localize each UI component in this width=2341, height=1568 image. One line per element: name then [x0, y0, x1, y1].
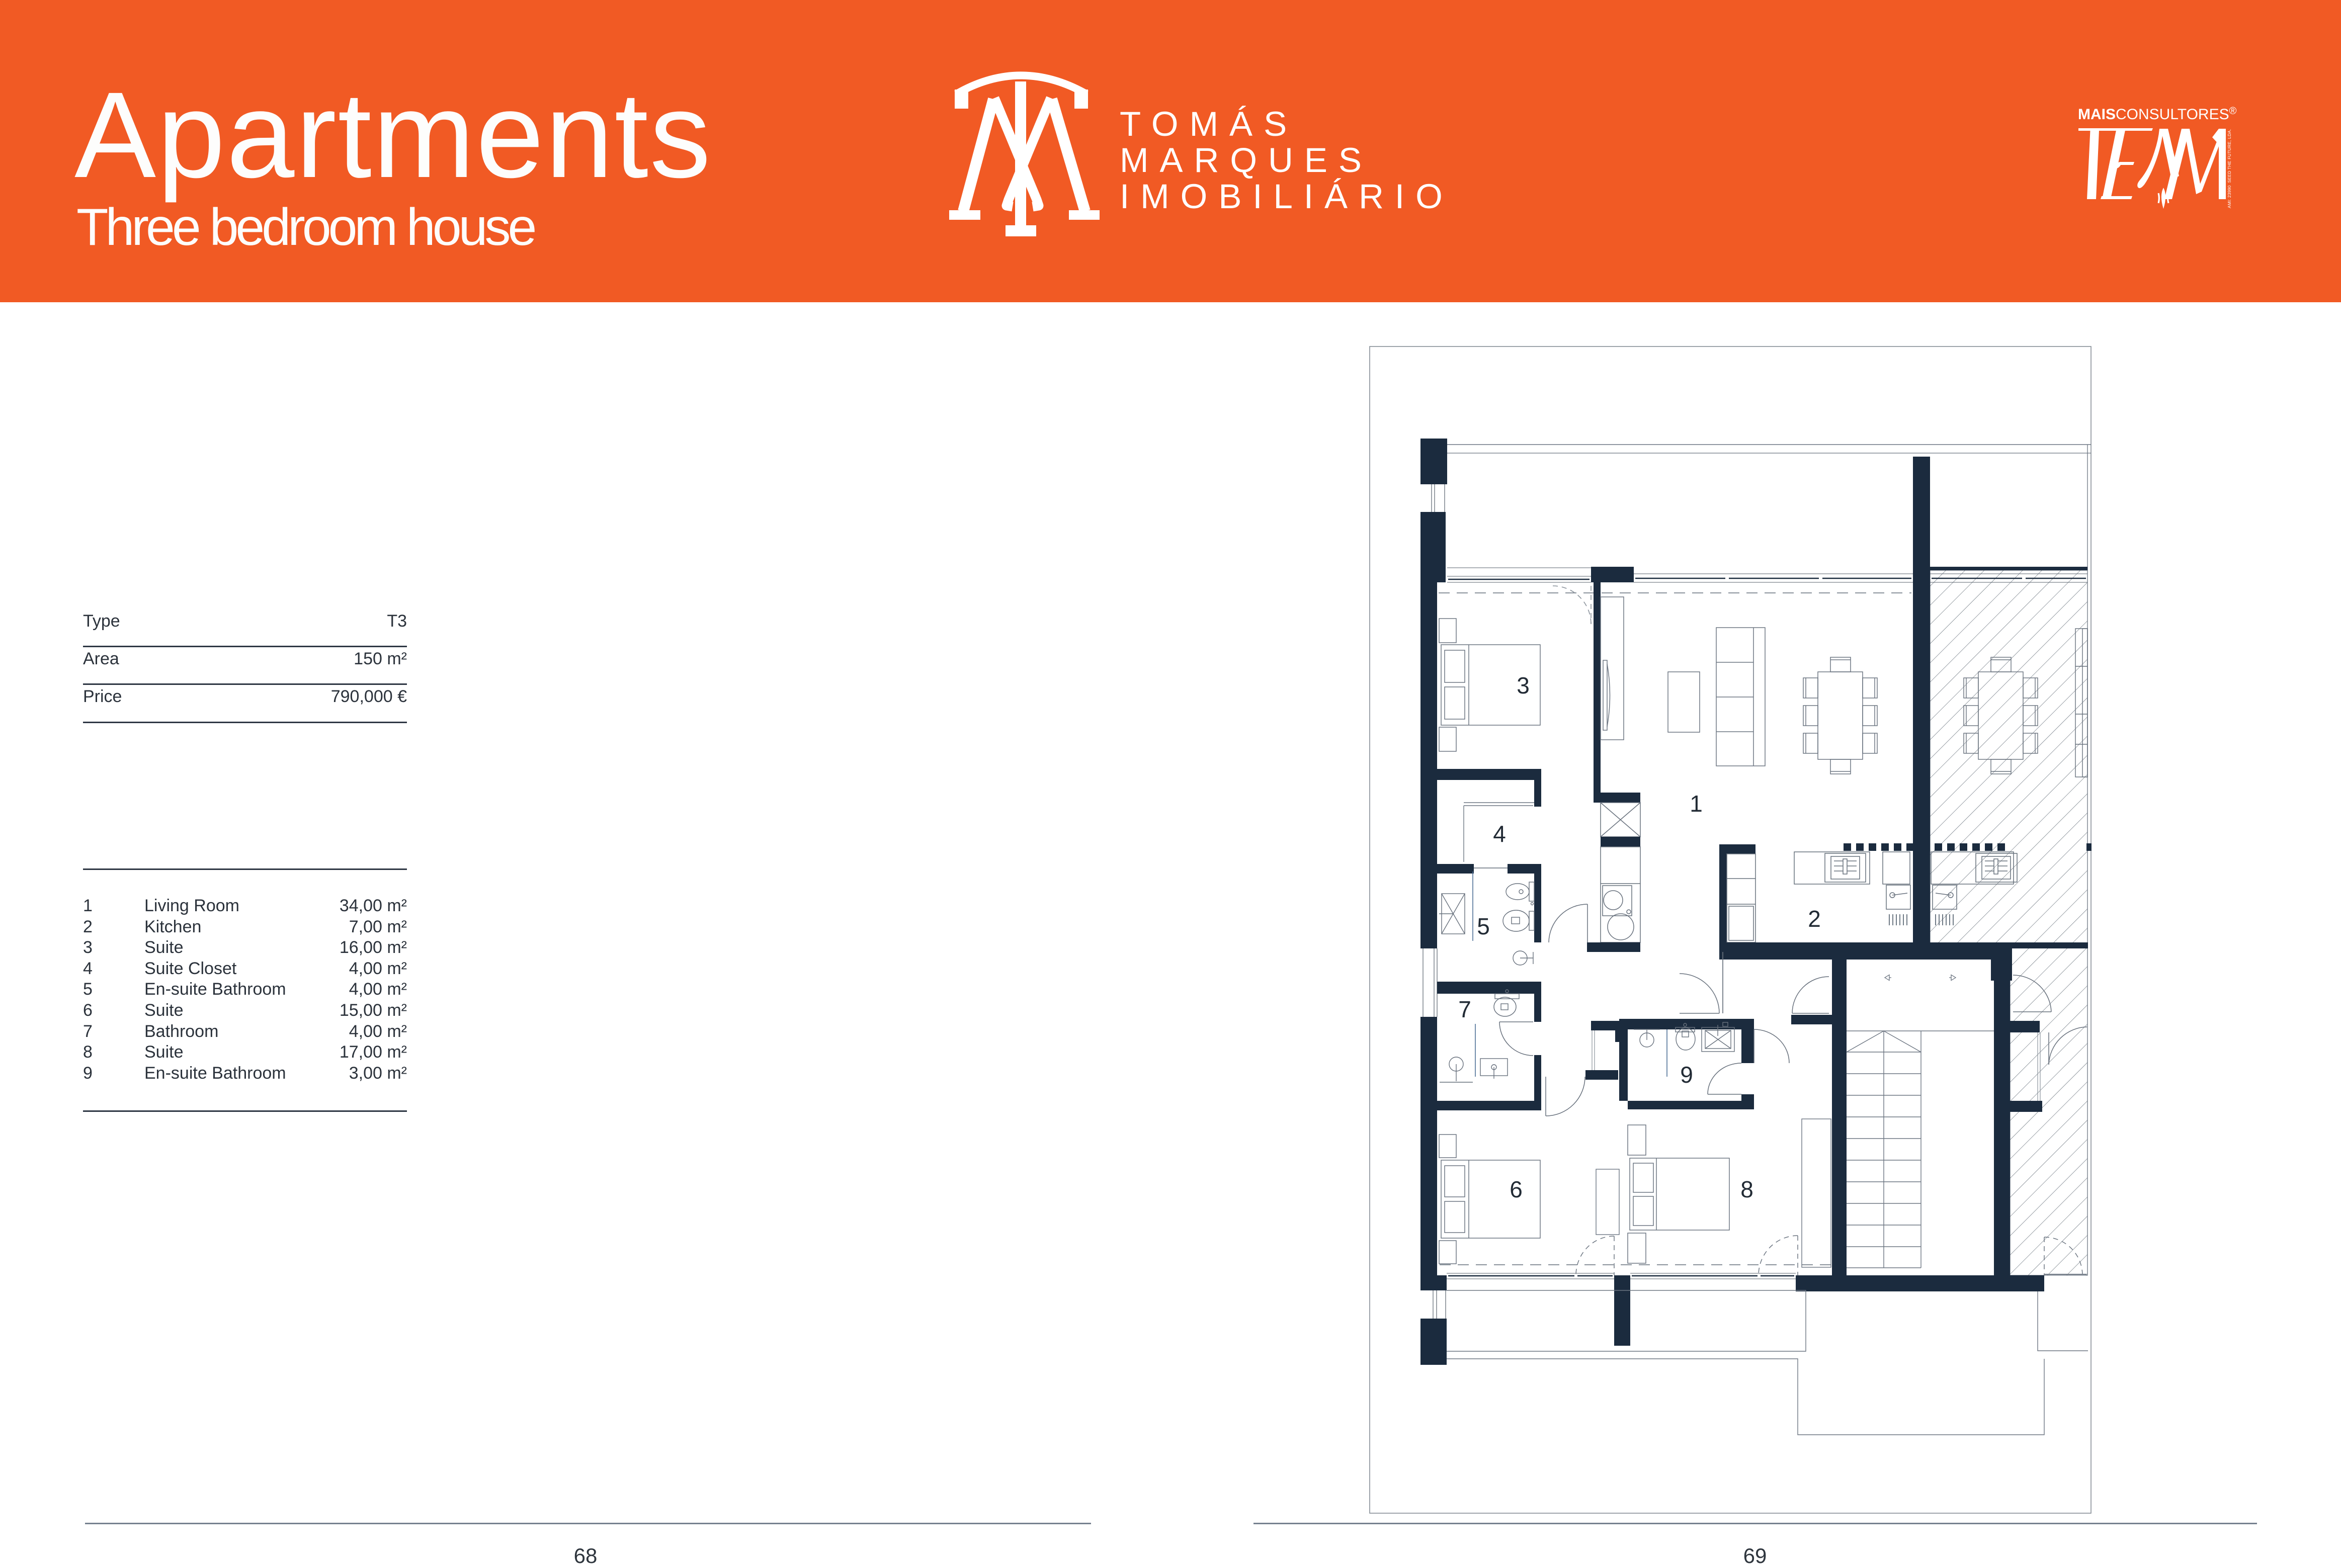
svg-text:5: 5 [1477, 913, 1490, 939]
svg-text:7: 7 [1458, 996, 1471, 1022]
svg-text:2: 2 [1808, 906, 1821, 932]
svg-text:6: 6 [1510, 1176, 1523, 1202]
svg-text:3: 3 [1517, 672, 1530, 699]
svg-text:8: 8 [1740, 1176, 1753, 1202]
svg-text:1: 1 [1690, 791, 1703, 817]
svg-text:4: 4 [1493, 821, 1506, 847]
svg-text:9: 9 [1680, 1062, 1693, 1088]
